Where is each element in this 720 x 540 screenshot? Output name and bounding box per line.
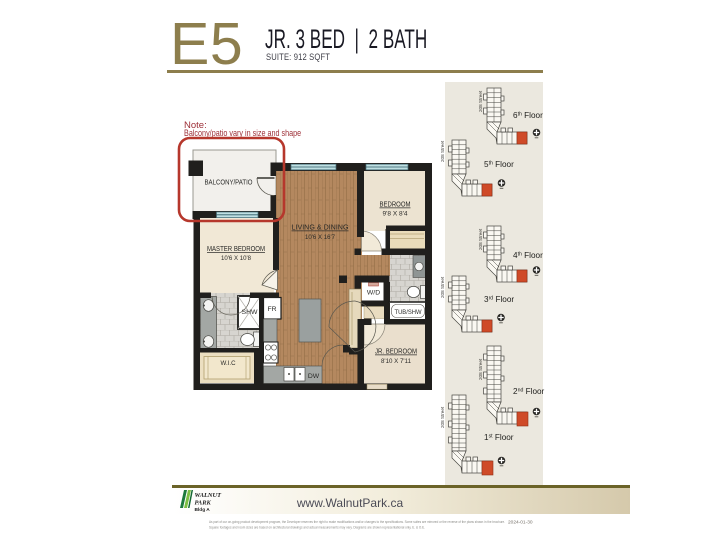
svg-text:Bldg A: Bldg A (195, 507, 211, 513)
svg-text:DW: DW (308, 373, 320, 380)
svg-text:TUB/SHW: TUB/SHW (395, 310, 422, 316)
svg-text:PARK: PARK (195, 500, 212, 507)
svg-text:5th Floor: 5th Floor (484, 160, 514, 169)
svg-text:208 Street: 208 Street (440, 406, 445, 428)
svg-text:4th Floor: 4th Floor (513, 251, 543, 260)
svg-text:208 Street: 208 Street (440, 140, 445, 162)
svg-text:MASTER BEDROOM: MASTER BEDROOM (207, 244, 265, 253)
svg-text:208 Street: 208 Street (440, 276, 445, 298)
svg-text:9'8 X 8'4: 9'8 X 8'4 (383, 211, 408, 218)
svg-text:10'6 X 10'8: 10'6 X 10'8 (221, 255, 251, 262)
svg-text:10'6 X 16'7: 10'6 X 16'7 (305, 234, 335, 241)
svg-text:FR: FR (267, 306, 276, 313)
svg-text:JR. BEDROOM: JR. BEDROOM (375, 347, 417, 356)
svg-text:BEDROOM: BEDROOM (380, 200, 411, 209)
svg-text:6th Floor: 6th Floor (513, 111, 543, 120)
svg-text:Square footages and room sizes: Square footages and room sizes are based… (209, 525, 425, 530)
svg-text:W.I.C: W.I.C (221, 360, 236, 367)
svg-text:3rd Floor: 3rd Floor (484, 295, 514, 304)
svg-text:1st Floor: 1st Floor (484, 433, 514, 442)
svg-text:8'10 X 7'11: 8'10 X 7'11 (381, 358, 411, 365)
svg-text:BALCONY/PATIO: BALCONY/PATIO (205, 180, 253, 187)
svg-text:208 Street: 208 Street (478, 358, 483, 380)
svg-text:208 Street: 208 Street (478, 90, 483, 112)
svg-text:LIVING & DINING: LIVING & DINING (292, 223, 349, 232)
svg-text:2024-01-30: 2024-01-30 (508, 520, 533, 526)
svg-text:W/D: W/D (367, 290, 380, 297)
svg-text:As part of our on-going produc: As part of our on-going product developm… (209, 519, 505, 524)
svg-text:WALNUT: WALNUT (195, 492, 223, 499)
svg-text:208 Street: 208 Street (478, 228, 483, 250)
